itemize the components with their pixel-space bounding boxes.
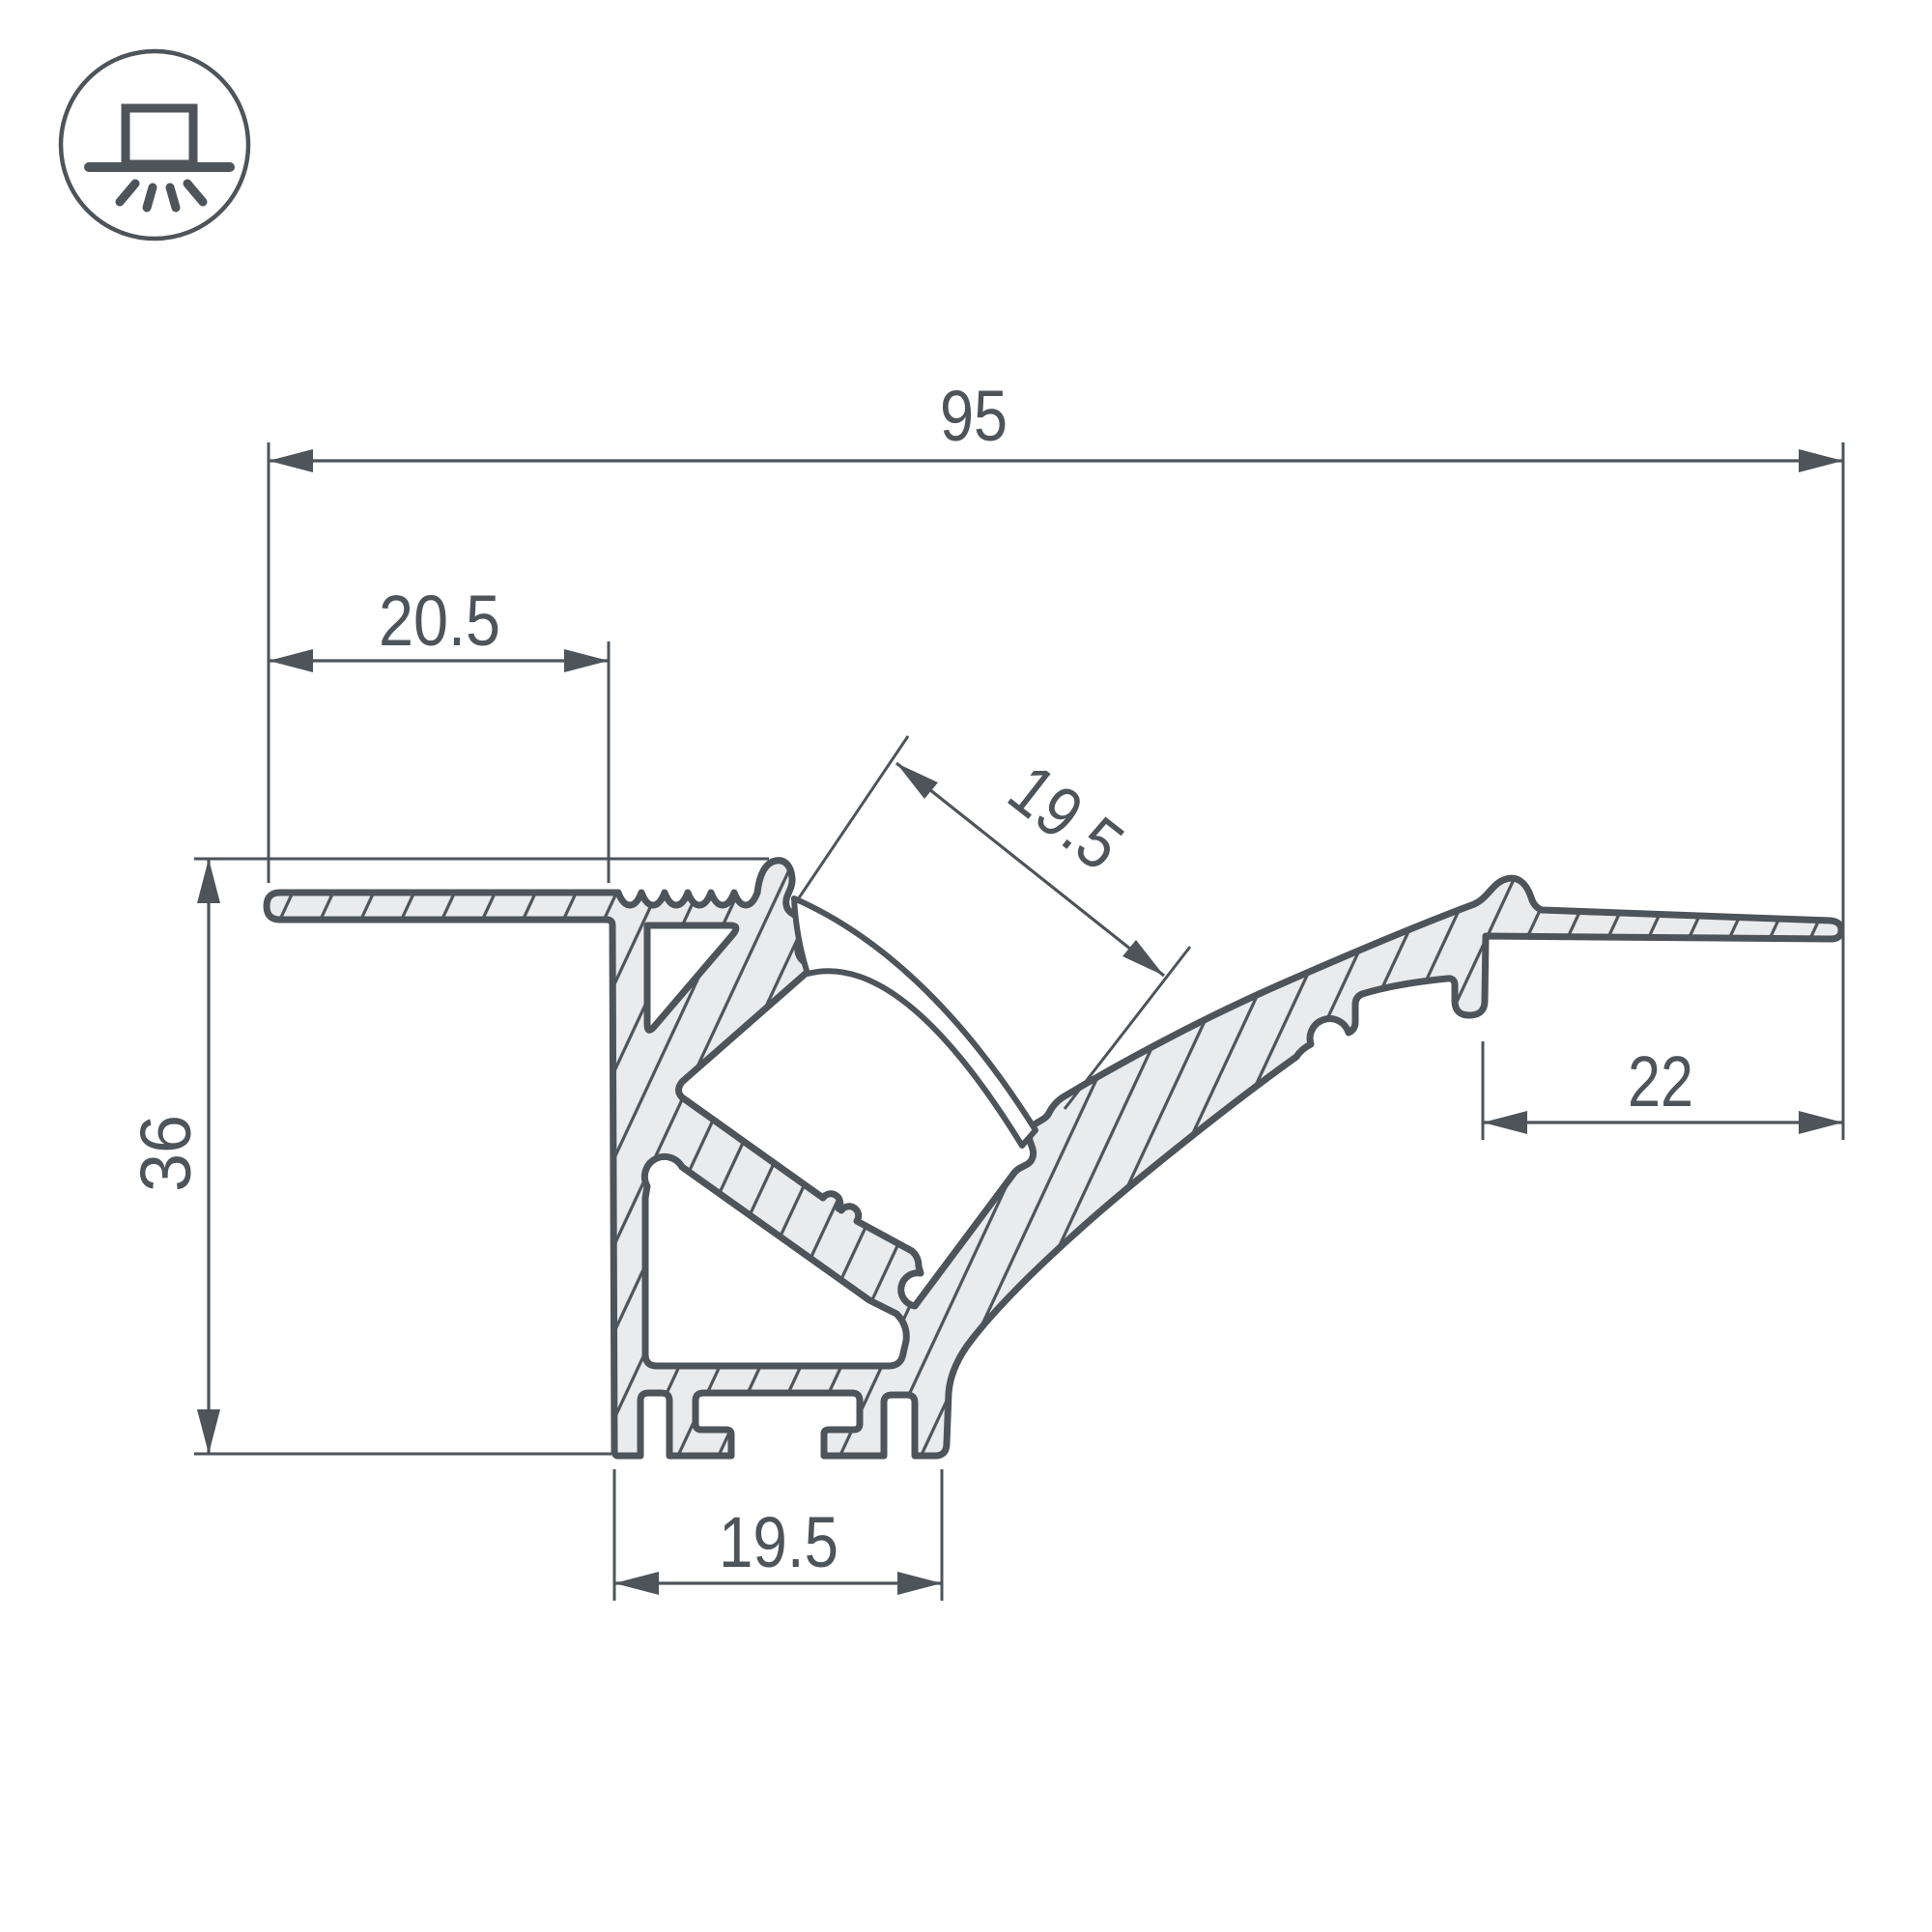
arrowhead xyxy=(1483,1111,1527,1134)
surface-mounted-light-icon xyxy=(61,51,248,239)
dimension-channel-width: 19.5 xyxy=(796,736,1190,1109)
arrowhead xyxy=(1799,1111,1843,1134)
arrowhead xyxy=(269,449,313,472)
dimension-label-19-5-channel: 19.5 xyxy=(994,749,1138,886)
arrowhead xyxy=(197,859,220,903)
arrowhead xyxy=(1122,940,1164,976)
icon-lamp-box xyxy=(126,108,193,164)
diffuser-cover xyxy=(794,898,1036,1146)
arrowhead xyxy=(269,649,313,672)
dimension-label-19-5-base: 19.5 xyxy=(719,1502,838,1582)
dimension-label-22: 22 xyxy=(1628,1041,1693,1122)
arrowhead xyxy=(197,1409,220,1454)
profile-hatching xyxy=(267,861,1841,1456)
icon-light-rays xyxy=(120,184,203,208)
arrowhead xyxy=(896,763,938,799)
arrowhead xyxy=(1799,449,1843,472)
arrowhead xyxy=(897,1572,942,1595)
led-profile-cross-section-drawing: 95 20.5 36 19.5 22 xyxy=(0,0,1932,1932)
dimension-label-95: 95 xyxy=(940,376,1008,456)
arrowhead xyxy=(564,649,609,672)
dimension-left-flange-width: 20.5 xyxy=(269,581,609,883)
dimension-right-flange-width: 22 xyxy=(1483,1041,1843,1140)
dimension-base-width: 19.5 xyxy=(614,1469,942,1601)
dimension-label-36: 36 xyxy=(126,1115,206,1192)
dimension-label-20-5: 20.5 xyxy=(379,581,500,661)
technical-drawing-page: 95 20.5 36 19.5 22 xyxy=(0,0,1932,1932)
arrowhead xyxy=(614,1572,659,1595)
aluminum-profile-body xyxy=(267,861,1841,1456)
extension-line xyxy=(796,736,908,902)
icon-circle xyxy=(61,51,248,239)
